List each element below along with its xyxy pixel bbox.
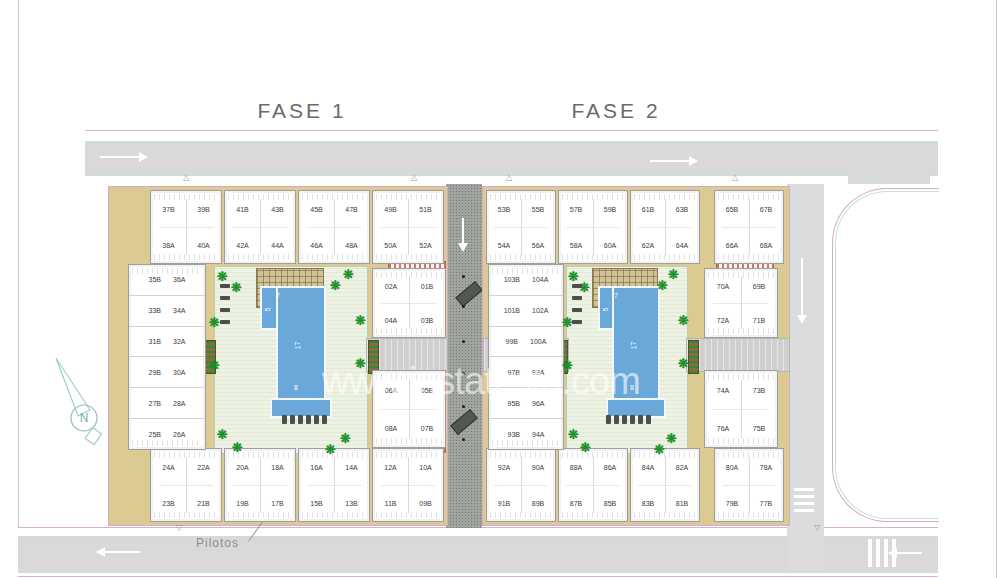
apartment-block: 57B59B58A60A (558, 190, 628, 264)
palm-tree-icon: ❋ (209, 316, 220, 329)
entrance-marker: △ (411, 174, 417, 182)
central-road (446, 184, 482, 528)
palm-tree-icon: ❋ (330, 279, 341, 292)
unit-label: 88A (570, 464, 582, 471)
unit-label: 59B (604, 206, 616, 213)
entrance-marker: △ (506, 174, 512, 182)
unit-label: 04A (385, 317, 397, 324)
unit-label: 29B (149, 369, 161, 376)
unit-label: 84A (642, 464, 654, 471)
right-road (787, 184, 824, 570)
unit-label: 51B (419, 206, 431, 213)
bollard (462, 305, 465, 308)
apartment-block: 65B67B66A68A (714, 190, 784, 264)
unit-label: 100A (530, 338, 546, 345)
unit-label: 01B (421, 283, 433, 290)
palm-tree-icon: ❋ (580, 441, 591, 454)
unit-label: 57B (570, 206, 582, 213)
unit-label: 03B (421, 317, 433, 324)
unit-label: 27B (149, 400, 161, 407)
palm-tree-icon: ❋ (217, 270, 228, 283)
top-road-driveway (848, 172, 930, 184)
unit-label: 79B (726, 500, 738, 507)
watermark: www.instatesta.com (322, 360, 702, 403)
unit-label: 28A (173, 400, 185, 407)
unit-label: 38A (162, 242, 174, 249)
unit-label: 85B (604, 500, 616, 507)
unit-row: 35B36A (129, 265, 205, 296)
unit-label: 67B (760, 206, 772, 213)
apartment-block: 41B43B42A44A (224, 190, 296, 264)
arrow-down-icon (801, 258, 803, 316)
sun-lounger (322, 415, 327, 424)
unit-row: 101B102A (489, 296, 563, 327)
apartment-block: 103B104A101B102A99B100A97B98A95B96A93B94… (488, 264, 564, 450)
unit-label: 64A (676, 242, 688, 249)
arrow-down-icon (462, 218, 464, 244)
palm-tree-icon: ❋ (654, 443, 665, 456)
apartment-block: 70A69B72A71B (704, 268, 778, 338)
apartment-block: 37B39B38A40A (150, 190, 222, 264)
unit-label: 91B (498, 500, 510, 507)
unit-label: 53B (498, 206, 510, 213)
entrance-marker: △ (732, 174, 738, 182)
unit-label: 48A (345, 242, 357, 249)
unit-label: 13B (345, 500, 357, 507)
unit-label: 14A (345, 464, 357, 471)
unit-label: 55B (532, 206, 544, 213)
bollard (462, 275, 465, 278)
fase2-title: FASE 2 (551, 99, 681, 123)
unit-label: 54A (498, 242, 510, 249)
palm-tree-icon: ❋ (232, 441, 243, 454)
pool-dim-side: 5 (602, 308, 609, 312)
pool-dim-top: 7 (614, 292, 618, 299)
unit-row: 33B34A (129, 296, 205, 327)
unit-label: 32A (173, 338, 185, 345)
unit-label: 11B (385, 500, 397, 507)
apartment-block: 20A18A19B17B (224, 448, 296, 522)
pool-dim-length: 17 (630, 342, 637, 350)
unit-label: 36A (173, 276, 185, 283)
entrance-marker: ▽ (814, 524, 820, 532)
unit-label: 34A (173, 307, 185, 314)
unit-label: 10A (419, 464, 431, 471)
unit-label: 89B (532, 500, 544, 507)
unit-label: 86A (604, 464, 616, 471)
page-border-right (996, 0, 997, 578)
site-plan: FASE 1 FASE 2 75178❋❋❋❋❋❋❋❋❋❋❋❋37B39B38A… (0, 0, 1000, 578)
sun-lounger (614, 415, 619, 424)
sun-lounger (572, 320, 582, 324)
sun-lounger (220, 308, 230, 312)
unit-label: 94A (532, 431, 544, 438)
apartment-block: 24A22A23B21B (150, 448, 222, 522)
unit-label: 08A (385, 425, 397, 432)
unit-label: 74A (717, 387, 729, 394)
sun-lounger (638, 415, 643, 424)
apartment-block: 53B55B54A56A (486, 190, 556, 264)
compass-icon: N (36, 350, 112, 446)
unit-label: 20A (236, 464, 248, 471)
unit-label: 39B (197, 206, 209, 213)
apartment-block: 88A86A87B85B (558, 448, 628, 522)
road-curb-curve (832, 188, 939, 522)
bottom-road-boundary (18, 576, 938, 577)
unit-label: 35B (149, 276, 161, 283)
arrow-right-icon (100, 156, 140, 158)
unit-label: 77B (760, 500, 772, 507)
unit-label: 07B (421, 425, 433, 432)
bollard (462, 405, 465, 408)
palm-tree-icon: ❋ (355, 314, 366, 327)
sun-lounger (630, 415, 635, 424)
unit-label: 26A (173, 431, 185, 438)
unit-row: 99B100A (489, 327, 563, 358)
fase1-title: FASE 1 (237, 99, 367, 123)
unit-label: 45B (310, 206, 322, 213)
sun-lounger (220, 284, 230, 288)
pilotos-label: Pilotos (196, 536, 239, 550)
unit-label: 23B (162, 500, 174, 507)
sun-lounger (572, 284, 582, 288)
sun-lounger (572, 308, 582, 312)
unit-label: 90A (532, 464, 544, 471)
unit-label: 17B (271, 500, 283, 507)
palm-tree-icon: ❋ (325, 443, 336, 456)
unit-label: 30A (173, 369, 185, 376)
unit-label: 69B (753, 283, 765, 290)
unit-label: 75B (753, 425, 765, 432)
unit-label: 63B (676, 206, 688, 213)
unit-label: 78A (760, 464, 772, 471)
unit-label: 46A (310, 242, 322, 249)
unit-label: 40A (197, 242, 209, 249)
apartment-block: 12A10A11B09B (372, 448, 444, 522)
unit-label: 73B (753, 387, 765, 394)
palm-tree-icon: ❋ (668, 268, 679, 281)
unit-label: 104A (532, 276, 548, 283)
sun-lounger (282, 415, 287, 424)
sun-lounger (646, 415, 651, 424)
unit-label: 60A (604, 242, 616, 249)
unit-label: 02A (385, 283, 397, 290)
pool-dim-side: 5 (264, 308, 271, 312)
unit-label: 56A (532, 242, 544, 249)
unit-row: 25B26A (129, 419, 205, 449)
pool-dim-top: 7 (276, 292, 280, 299)
unit-label: 15B (310, 500, 322, 507)
unit-row: 29B30A (129, 357, 205, 388)
apartment-block: 45B47B46A48A (298, 190, 370, 264)
page-border-left (18, 0, 19, 578)
palm-tree-icon: ❋ (231, 281, 242, 294)
sun-lounger (606, 415, 611, 424)
unit-label: 61B (642, 206, 654, 213)
unit-label: 93B (508, 431, 520, 438)
entrance-marker: △ (183, 174, 189, 182)
palm-tree-icon: ❋ (678, 314, 689, 327)
palm-tree-icon: ❋ (340, 432, 351, 445)
unit-label: 22A (197, 464, 209, 471)
bollard (462, 438, 465, 441)
unit-label: 37B (162, 206, 174, 213)
unit-label: 72A (717, 317, 729, 324)
apartment-block: 92A90A91B89B (486, 448, 556, 522)
sun-lounger (298, 415, 303, 424)
arrow-right-icon (650, 160, 690, 162)
palm-tree-icon: ❋ (657, 279, 668, 292)
palm-tree-icon: ❋ (568, 270, 579, 283)
apartment-block: 80A78A79B77B (714, 448, 784, 522)
unit-label: 16A (310, 464, 322, 471)
sun-lounger (622, 415, 627, 424)
unit-label: 58A (570, 242, 582, 249)
sun-lounger (572, 296, 582, 300)
unit-row: 93B94A (489, 419, 563, 449)
pool-dim-length: 17 (294, 342, 301, 350)
unit-label: 24A (162, 464, 174, 471)
sun-lounger (290, 415, 295, 424)
unit-label: 83B (642, 500, 654, 507)
unit-label: 66A (726, 242, 738, 249)
unit-label: 49B (384, 206, 396, 213)
unit-label: 21B (197, 500, 209, 507)
unit-label: 92A (498, 464, 510, 471)
unit-row: 31B32A (129, 327, 205, 358)
pool-dim-bottom: 8 (294, 384, 298, 391)
bollard (462, 340, 465, 343)
sun-lounger (314, 415, 319, 424)
unit-label: 41B (236, 206, 248, 213)
unit-label: 65B (726, 206, 738, 213)
unit-label: 47B (345, 206, 357, 213)
unit-label: 71B (753, 317, 765, 324)
palm-tree-icon: ❋ (343, 268, 354, 281)
palm-tree-icon: ❋ (568, 428, 579, 441)
sun-lounger (306, 415, 311, 424)
unit-label: 43B (271, 206, 283, 213)
unit-label: 09B (419, 500, 431, 507)
apartment-block: 16A14A15B13B (298, 448, 370, 522)
unit-label: 102A (532, 307, 548, 314)
unit-label: 82A (676, 464, 688, 471)
sun-lounger (220, 296, 230, 300)
unit-label: 33B (149, 307, 161, 314)
palm-tree-icon: ❋ (666, 432, 677, 445)
unit-label: 42A (236, 242, 248, 249)
unit-label: 76A (717, 425, 729, 432)
unit-label: 31B (149, 338, 161, 345)
apartment-block: 61B63B62A64A (630, 190, 700, 264)
unit-label: 52A (419, 242, 431, 249)
unit-label: 50A (384, 242, 396, 249)
apartment-block: 74A73B76A75B (704, 370, 778, 448)
unit-row: 103B104A (489, 265, 563, 296)
arrow-left-icon (896, 552, 922, 554)
unit-label: 44A (271, 242, 283, 249)
unit-label: 87B (570, 500, 582, 507)
unit-label: 99B (506, 338, 518, 345)
unit-label: 19B (236, 500, 248, 507)
unit-label: 101B (504, 307, 520, 314)
unit-label: 81B (676, 500, 688, 507)
apartment-block: 02A01B04A03B (372, 268, 446, 338)
unit-label: 12A (384, 464, 396, 471)
entrance-marker: ▽ (176, 524, 182, 532)
unit-label: 103B (504, 276, 520, 283)
palm-tree-icon: ❋ (209, 359, 220, 372)
apartment-block: 84A82A83B81B (630, 448, 700, 522)
unit-label: 25B (149, 431, 161, 438)
apartment-block: 35B36A33B34A31B32A29B30A27B28A25B26A (128, 264, 206, 450)
arrow-left-icon (104, 551, 140, 553)
sun-lounger (220, 320, 230, 324)
apartment-block: 49B51B50A52A (372, 190, 444, 264)
crosswalk (794, 488, 814, 512)
svg-text:N: N (80, 411, 89, 425)
unit-row: 27B28A (129, 388, 205, 419)
palm-tree-icon: ❋ (217, 428, 228, 441)
unit-label: 68A (760, 242, 772, 249)
unit-label: 80A (726, 464, 738, 471)
unit-label: 70A (717, 283, 729, 290)
unit-label: 18A (271, 464, 283, 471)
unit-label: 62A (642, 242, 654, 249)
crosswalk (868, 539, 896, 567)
